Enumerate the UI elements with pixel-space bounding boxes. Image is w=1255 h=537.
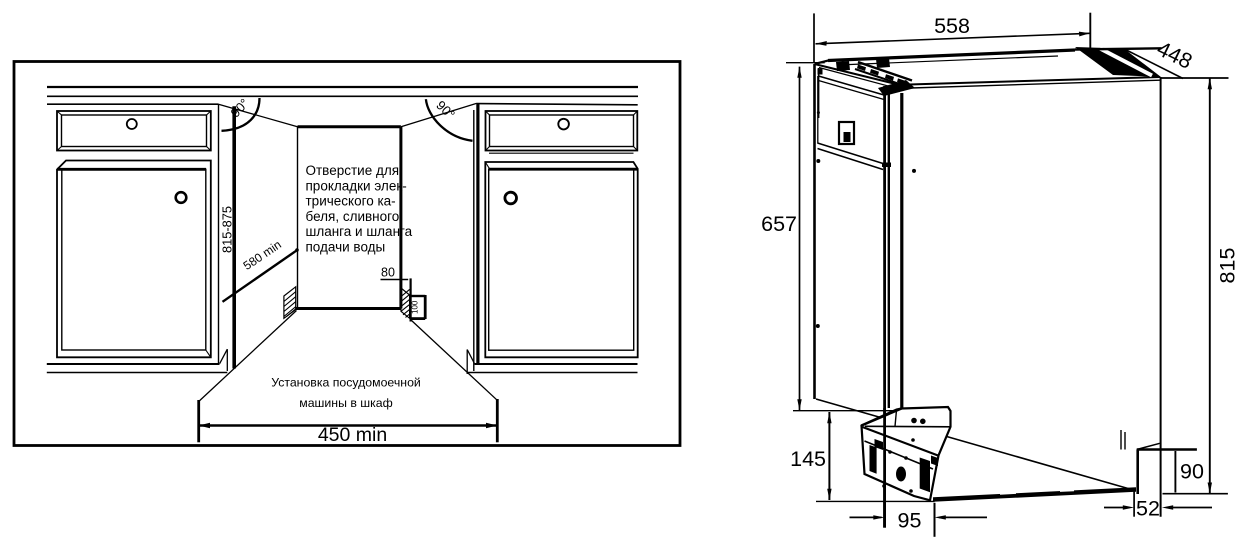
svg-text:машины в шкаф: машины в шкаф [299,396,393,410]
svg-text:Установка посудомоечной: Установка посудомоечной [271,376,421,390]
svg-text:657: 657 [761,212,797,236]
svg-text:трического ка-: трического ка- [306,194,396,209]
svg-text:145: 145 [790,447,826,471]
svg-text:беля, сливного: беля, сливного [306,209,400,224]
svg-text:52: 52 [1136,497,1160,521]
svg-text:подачи воды: подачи воды [306,240,386,255]
svg-text:80: 80 [381,266,395,280]
svg-text:100: 100 [410,300,419,314]
svg-text:450 min: 450 min [318,424,387,446]
svg-text:815-875: 815-875 [220,206,235,253]
svg-text:прокладки элек-: прокладки элек- [306,178,407,193]
svg-text:шланга и шланга: шланга и шланга [306,224,413,239]
svg-text:558: 558 [934,14,970,38]
svg-text:815: 815 [1216,248,1240,284]
svg-text:90: 90 [1180,460,1204,484]
svg-text:95: 95 [898,509,922,533]
svg-text:Отверстие для: Отверстие для [306,163,400,178]
